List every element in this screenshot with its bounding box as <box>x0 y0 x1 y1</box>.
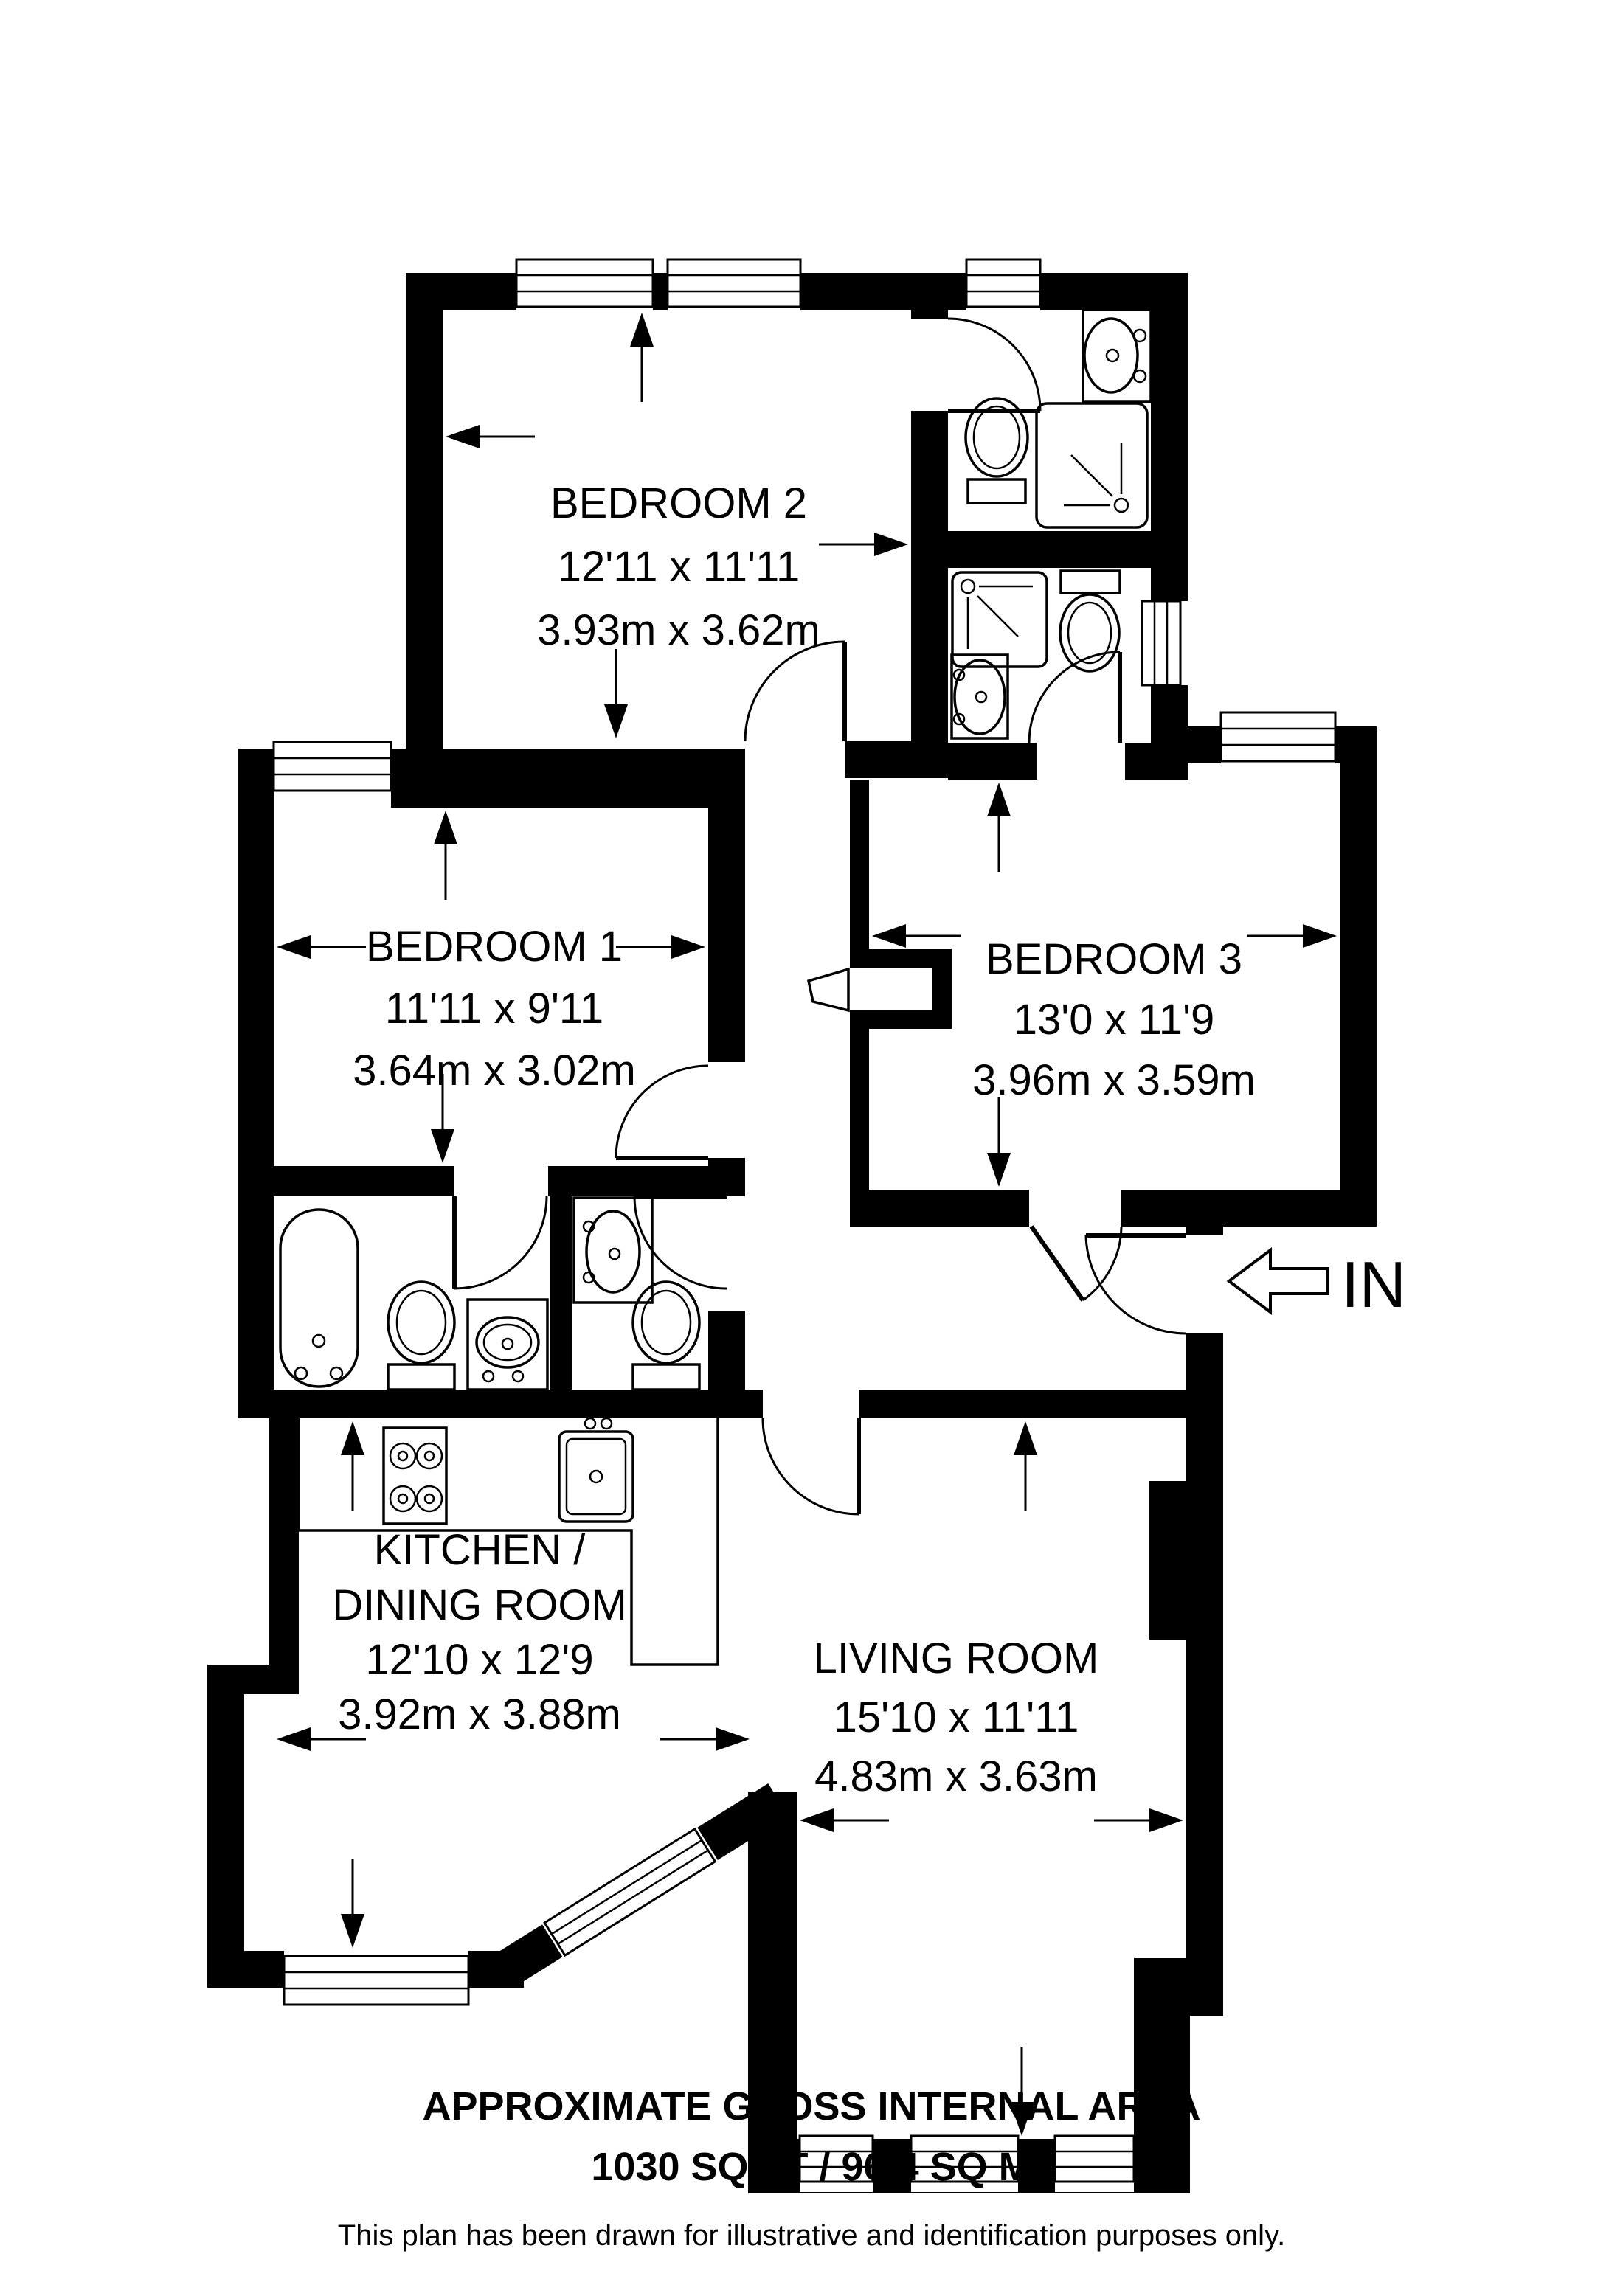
bedroom2-size-imperial: 12'11 x 11'11 <box>558 543 800 591</box>
door-entry <box>1086 1235 1186 1333</box>
bedroom2-size-metric: 3.93m x 3.62m <box>537 606 820 654</box>
dim-arrow-bed3-up <box>987 783 1011 872</box>
floorplan-drawing: BEDROOM 2 12'11 x 11'11 3.93m x 3.62m BE… <box>0 0 1623 2296</box>
dim-arrow-bed3-left <box>872 924 961 948</box>
window-kitchen <box>284 1949 468 2005</box>
ensuite-shower <box>1037 403 1147 527</box>
dim-arrow-bed1-right <box>616 935 705 959</box>
window-ensuite <box>966 260 1040 313</box>
door-bathroom <box>454 1196 547 1289</box>
dim-arrow-kitchen-down <box>341 1859 364 1948</box>
ensuite-sink <box>1083 310 1151 402</box>
dim-arrow-bed1-left <box>277 935 366 959</box>
dim-arrow-bed3-down <box>987 1097 1011 1187</box>
dim-arrow-bed2-left <box>446 425 535 448</box>
window-bed2-right <box>668 260 800 313</box>
wall-bed3-right <box>1340 726 1377 1227</box>
wall-living-top <box>859 1390 1223 1418</box>
kitchen-name-line1: KITCHEN / <box>374 1526 586 1574</box>
window-kitchen-bay-diagonal <box>541 1825 719 1959</box>
entrance: IN <box>1229 1248 1406 1321</box>
bathtub <box>280 1210 358 1387</box>
wall-bed3-bottom-right <box>1121 1190 1377 1227</box>
bath2-shower <box>952 572 1047 667</box>
bathroom-sink <box>468 1300 547 1390</box>
dim-arrow-kitchen-up <box>341 1421 364 1511</box>
wall-bath2-bottom-left <box>948 743 1037 780</box>
wc-toilet <box>633 1282 699 1390</box>
window-bay-3 <box>1055 2136 1134 2192</box>
door-ensuite <box>948 319 1040 411</box>
wall-bed2-left <box>406 273 443 785</box>
wall-bed3-left-lower <box>850 1029 869 1190</box>
wall-wc-right-lower <box>708 1311 745 1390</box>
kitchen-name-line2: DINING ROOM <box>332 1581 627 1629</box>
wall-bed2-ensuite-divider <box>911 411 948 778</box>
dim-arrow-bed2-down <box>604 649 628 738</box>
bathroom-toilet <box>388 1282 454 1390</box>
label-bedroom3: BEDROOM 3 13'0 x 11'9 3.96m x 3.59m <box>972 935 1256 1104</box>
label-bedroom1: BEDROOM 1 11'11 x 9'11 3.64m x 3.02m <box>353 923 636 1095</box>
wall-entry-stub <box>1186 1227 1223 1235</box>
wall-ensuite-right-lower <box>1151 684 1188 780</box>
dim-arrow-kitchen-right <box>660 1727 750 1751</box>
entrance-arrow-icon <box>1229 1250 1328 1312</box>
room-labels: BEDROOM 2 12'11 x 11'11 3.93m x 3.62m BE… <box>332 479 1256 1800</box>
wall-ensuite-bath2-divider <box>948 531 1151 568</box>
wall-kitchen-left-upper <box>269 1390 299 1694</box>
label-kitchen: KITCHEN / DINING ROOM 12'10 x 12'9 3.92m… <box>332 1526 627 1738</box>
bedroom1-name: BEDROOM 1 <box>366 923 623 971</box>
wall-bath-wc-divider <box>550 1196 572 1390</box>
label-living: LIVING ROOM 15'10 x 11'11 4.83m x 3.63m <box>814 1634 1099 1800</box>
wall-bay-stub-left <box>748 1792 797 2193</box>
wall-chimney-breast <box>1149 1481 1186 1640</box>
entrance-label: IN <box>1341 1248 1406 1321</box>
living-name: LIVING ROOM <box>814 1634 1099 1682</box>
dim-arrow-bed1-up <box>434 811 457 900</box>
wall-bed3-left-upper <box>850 780 869 949</box>
wc-sink <box>574 1198 652 1303</box>
dim-arrow-bed2-up <box>630 313 654 402</box>
label-bedroom2: BEDROOM 2 12'11 x 11'11 3.93m x 3.62m <box>537 479 820 654</box>
door-wc <box>634 1196 727 1289</box>
bedroom1-size-imperial: 11'11 x 9'11 <box>385 985 603 1033</box>
footer-area: 1030 SQ FT / 96.4 SQ M <box>591 2145 1031 2189</box>
wall-bed1-left <box>238 749 274 1418</box>
door-kitchen-living <box>763 1418 859 1514</box>
bedroom2-name: BEDROOM 2 <box>550 479 807 527</box>
window-bath2-side <box>1142 601 1194 685</box>
wall-closet-bottom <box>850 1010 952 1029</box>
bedroom1-size-metric: 3.64m x 3.02m <box>353 1047 636 1095</box>
wall-kitchen-top <box>238 1390 763 1418</box>
dim-arrow-living-right <box>1094 1808 1183 1832</box>
wall-bed1-right-upper <box>708 808 745 1062</box>
kitchen-size-metric: 3.92m x 3.88m <box>338 1690 621 1738</box>
dim-arrow-bed2-right <box>819 533 908 556</box>
bedroom3-size-metric: 3.96m x 3.59m <box>972 1056 1256 1104</box>
wall-ensuite-right-upper <box>1151 310 1188 603</box>
bedroom3-size-imperial: 13'0 x 11'9 <box>1014 996 1215 1044</box>
floorplan-page: BEDROOM 2 12'11 x 11'11 3.93m x 3.62m BE… <box>0 0 1623 2296</box>
dim-arrow-living-left <box>800 1808 889 1832</box>
footer-disclaimer: This plan has been drawn for illustrativ… <box>338 2219 1285 2252</box>
wall-bed3-bottom-left <box>850 1190 1029 1227</box>
kitchen-hob <box>384 1428 446 1524</box>
wall-kitchen-left-lower <box>207 1665 244 1988</box>
dim-arrow-bed3-right <box>1247 924 1337 948</box>
wall-bathroom-top-left <box>238 1166 454 1196</box>
wall-bathroom-top-right <box>548 1166 745 1196</box>
footer-title: APPROXIMATE GROSS INTERNAL AREA <box>422 2084 1200 2129</box>
door-closet <box>809 969 848 1010</box>
wall-bed2-ensuite-divider-stub <box>911 310 948 319</box>
living-size-metric: 4.83m x 3.63m <box>814 1752 1098 1800</box>
bedroom3-name: BEDROOM 3 <box>986 935 1242 983</box>
door-bedroom2 <box>745 642 845 741</box>
dim-arrow-living-up <box>1014 1421 1037 1511</box>
kitchen-size-imperial: 12'10 x 12'9 <box>365 1636 593 1684</box>
wall-living-right <box>1186 1333 1223 2016</box>
window-bed3 <box>1221 712 1335 765</box>
window-bed2-left <box>516 260 653 313</box>
wall-bath2-bottom-right <box>1125 743 1151 780</box>
kitchen-sink <box>559 1418 633 1522</box>
window-bed1 <box>274 742 391 809</box>
living-size-imperial: 15'10 x 11'11 <box>834 1693 1079 1741</box>
wall-bed2-bottom-right <box>845 741 911 778</box>
ensuite-toilet <box>966 398 1028 503</box>
